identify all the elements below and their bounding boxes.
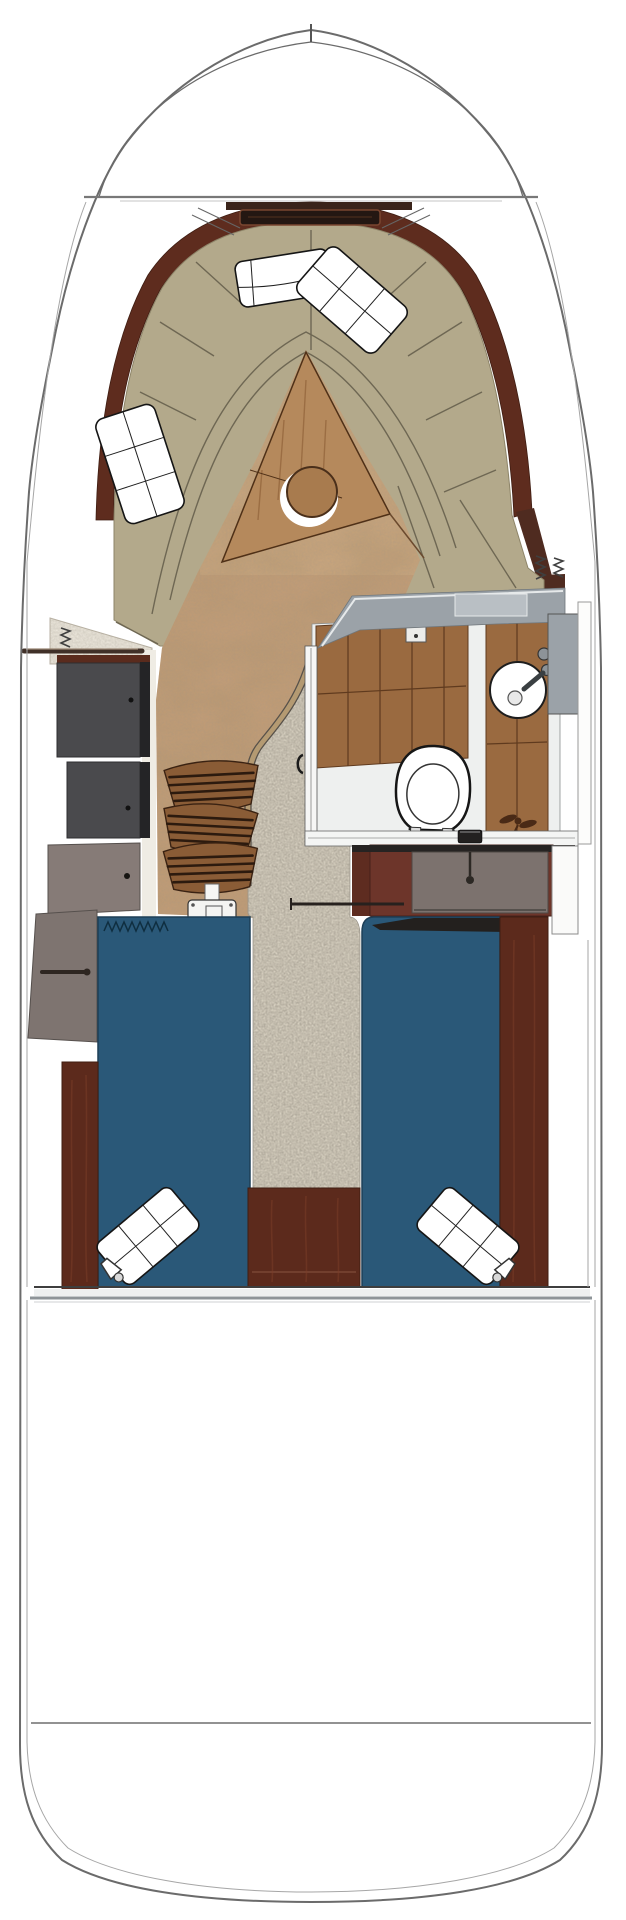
galley-cabinet-lower [67,762,140,838]
head-compartment [298,588,591,846]
floorplan-canvas [0,0,626,1920]
dresser-drawer [412,852,548,913]
hull-side-panel [578,602,591,844]
head-aft-wall [305,830,578,846]
vanity-teak-panel [486,614,548,836]
storage-locker-lower [28,910,97,1042]
port-hull-board [62,1062,98,1290]
aft-bulkhead [30,1287,592,1302]
berth-divider [248,1188,360,1287]
starboard-side-panel [552,846,578,934]
storage-locker-upper [48,843,140,915]
galley-cabinet-upper [57,663,140,757]
grab-rail [24,649,142,651]
toilet [394,745,471,837]
v-berth-table [287,467,337,517]
bow-pulpit-rail [99,42,523,197]
boat-floorplan [0,0,626,1920]
head-side-cabinet [548,614,578,714]
starboard-hull-board [500,917,548,1287]
head-teak-floor [316,617,468,768]
